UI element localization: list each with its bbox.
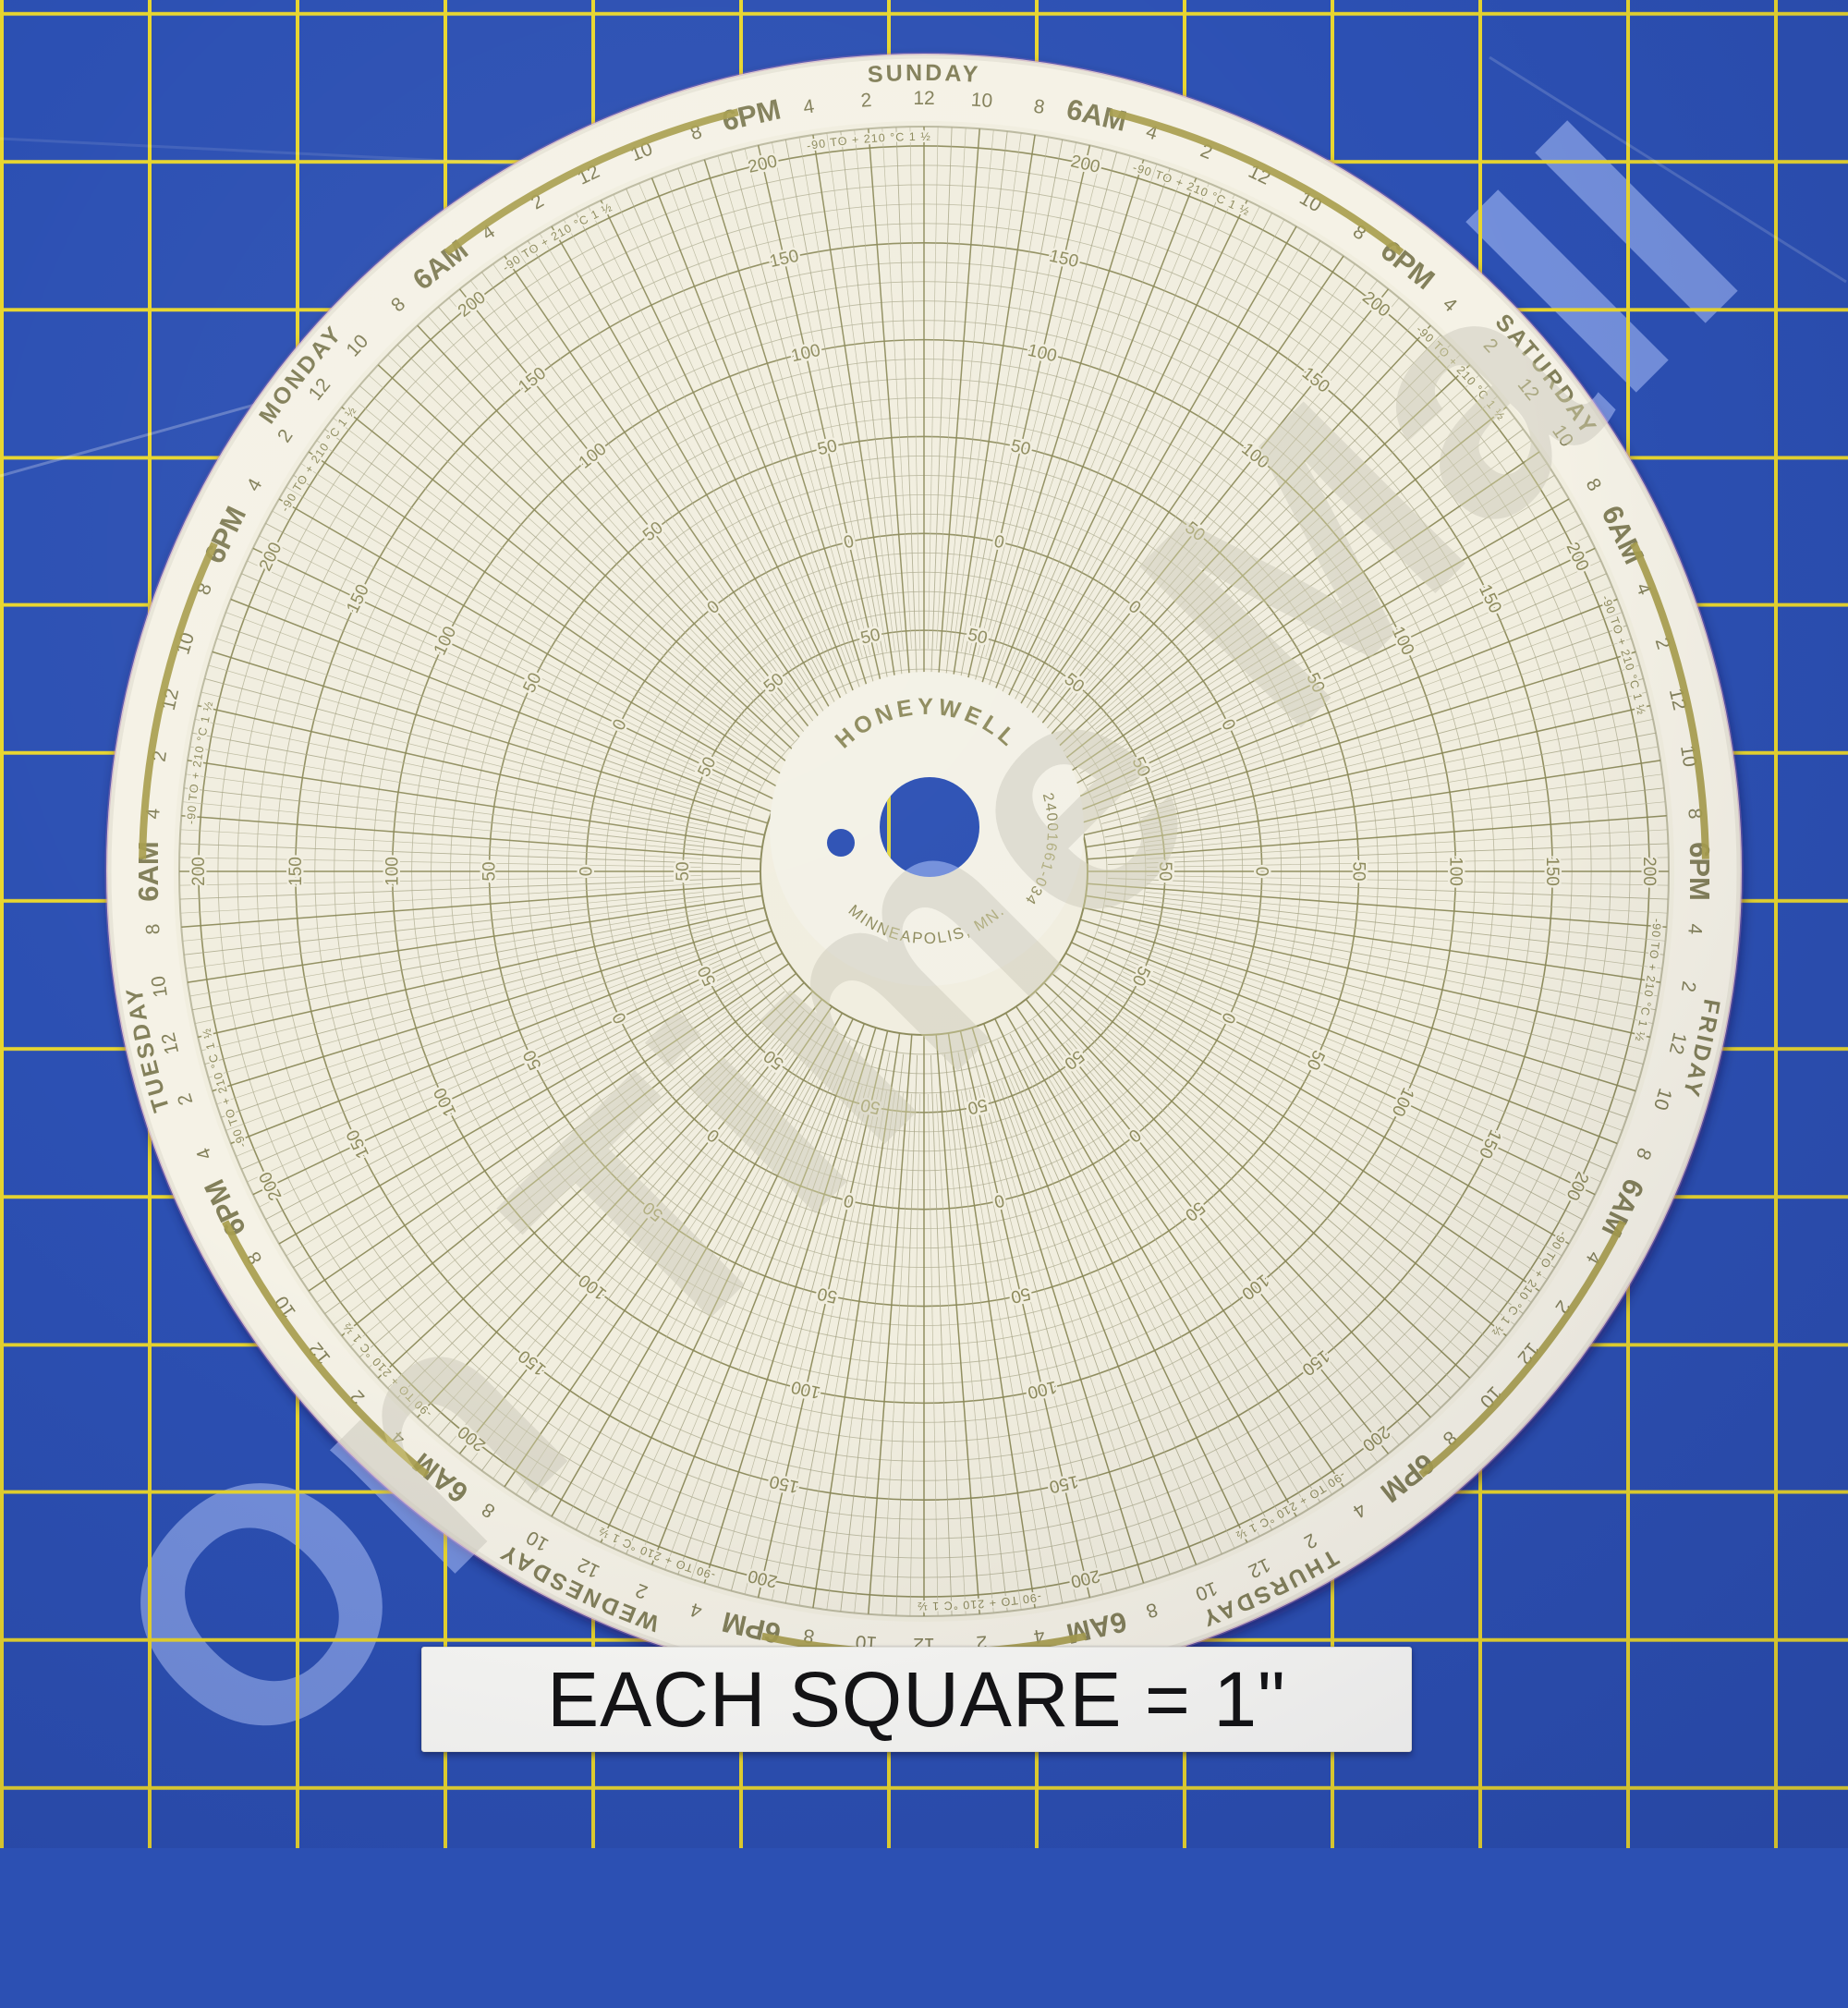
scale-numeral: 100 bbox=[383, 857, 403, 886]
scale-numeral: 50 bbox=[1349, 861, 1368, 881]
center-hole bbox=[880, 777, 979, 877]
scale-reference-text: EACH SQUARE = 1" bbox=[547, 1655, 1286, 1745]
scale-numeral: 50 bbox=[674, 861, 693, 881]
scale-numeral: 150 bbox=[286, 857, 306, 886]
hour-label: 8 bbox=[142, 923, 164, 935]
hour-label: 6AM bbox=[132, 841, 164, 901]
scale-numeral: 0 bbox=[577, 867, 596, 877]
scale-numeral: 200 bbox=[189, 857, 209, 886]
scale-reference-sticker: EACH SQUARE = 1" bbox=[421, 1647, 1412, 1752]
hour-label: 10 bbox=[148, 974, 172, 999]
hour-label: 10 bbox=[970, 89, 993, 112]
scale-numeral: 200 bbox=[1639, 857, 1659, 886]
hour-label: 2 bbox=[860, 90, 872, 112]
product-photo-scene: 2001501005005020015010050050200150100500… bbox=[0, 0, 1848, 1848]
scale-numeral: 150 bbox=[1542, 857, 1562, 886]
hour-label: 12 bbox=[913, 88, 934, 109]
scale-numeral: 100 bbox=[1445, 857, 1465, 886]
circular-chart-recorder-paper: 2001501005005020015010050050200150100500… bbox=[0, 0, 1848, 1848]
scale-numeral: 50 bbox=[1155, 861, 1174, 881]
hour-label: 4 bbox=[1684, 923, 1706, 936]
day-label: SUNDAY bbox=[867, 60, 981, 88]
hour-label: 6PM bbox=[1684, 842, 1716, 901]
scale-numeral: 50 bbox=[480, 861, 500, 881]
drive-hole bbox=[827, 829, 855, 857]
scale-numeral: 0 bbox=[1252, 867, 1271, 877]
chart-disc: 2001501005005020015010050050200150100500… bbox=[106, 54, 1742, 1689]
